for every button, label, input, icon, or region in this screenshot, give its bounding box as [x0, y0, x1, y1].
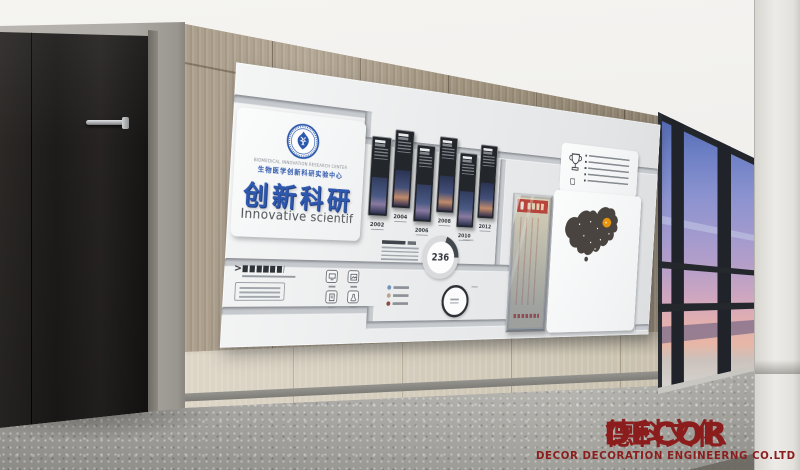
stat-ring	[441, 285, 470, 318]
notice-block: >	[232, 264, 311, 304]
legend-dot-tan	[387, 293, 391, 297]
door-handle-lever	[86, 120, 126, 125]
right-column	[754, 0, 800, 470]
column-base-shadow	[755, 360, 800, 374]
brand-subtitle: DECOR DECORATION ENGINEERNG CO.LTD	[536, 451, 794, 462]
window-mullion	[718, 141, 732, 375]
cabinet-glass	[507, 194, 552, 330]
door-panel	[0, 28, 148, 430]
timeline-year: 2012	[476, 223, 494, 232]
timeline-year: 2004	[390, 213, 410, 223]
legend-item	[387, 293, 418, 298]
picture-icon	[347, 270, 359, 283]
poster-photo	[458, 191, 473, 226]
map-island	[584, 257, 588, 262]
corridor-scene: BIOMEDICAL INNOVATION RESEARCH CENTER 生物…	[0, 0, 800, 470]
timeline-poster	[456, 152, 478, 228]
channel-groove	[366, 319, 506, 329]
window-mullion	[671, 118, 684, 385]
timeline-year: 2008	[435, 217, 454, 227]
map-panel	[546, 189, 641, 332]
map-stats	[553, 271, 632, 325]
timeline-poster	[391, 129, 415, 209]
door-jamb	[148, 26, 158, 430]
honors-panel	[559, 142, 639, 198]
notice-box-lines	[239, 287, 280, 298]
institute-emblem-icon	[285, 121, 321, 161]
legend-label	[393, 303, 408, 305]
watermark: DECOR 德科文化 DECOR DECORATION ENGINEERNG C…	[536, 414, 794, 466]
brand-logo: DECOR 德科文化	[536, 414, 794, 448]
notice-heading-text	[242, 265, 284, 273]
seal-icon	[570, 178, 575, 185]
honors-text-rows	[587, 155, 629, 190]
legend	[386, 285, 418, 312]
pictogram-grid	[324, 270, 368, 307]
timeline-poster	[477, 144, 498, 219]
poster-photo	[479, 182, 494, 216]
display-cabinet	[505, 193, 552, 333]
legend-dot-blue	[387, 285, 391, 290]
channel-groove	[637, 167, 657, 176]
timeline-poster	[436, 136, 458, 214]
timeline-poster	[413, 144, 436, 223]
door-handle-rose	[122, 117, 129, 129]
channel-groove	[635, 324, 649, 331]
legend-item	[387, 285, 418, 291]
poster-photo	[438, 175, 454, 211]
ring-caption	[471, 286, 477, 288]
notice-box	[234, 282, 285, 301]
notice-subtext	[242, 275, 295, 278]
monitor-icon	[325, 270, 338, 283]
timeline-poster	[368, 136, 392, 217]
legend-dot-maroon	[386, 301, 390, 305]
trophy-icon	[568, 152, 582, 175]
poster-photo	[370, 177, 387, 214]
timeline-year: 2010	[455, 232, 473, 241]
map-shape	[564, 204, 619, 256]
door-sheen	[0, 28, 148, 430]
flask-icon	[347, 290, 359, 303]
brand-logo-cjk: 德科文化	[605, 420, 725, 448]
legend-label	[393, 287, 408, 289]
timeline-year: 2002	[367, 220, 387, 230]
poster-photo	[415, 184, 431, 220]
poster-photo	[394, 170, 411, 207]
chevron-icon: >	[234, 263, 243, 274]
legend-label	[393, 295, 408, 297]
brand-panel: BIOMEDICAL INNOVATION RESEARCH CENTER 生物…	[230, 107, 366, 241]
door-handle	[86, 116, 134, 132]
china-map	[559, 198, 634, 266]
document-icon	[325, 290, 338, 303]
legend-item	[386, 301, 417, 306]
timeline-year: 2006	[412, 226, 431, 236]
timeline: 2002 2004 2006 2008 2010 2012	[365, 123, 501, 256]
